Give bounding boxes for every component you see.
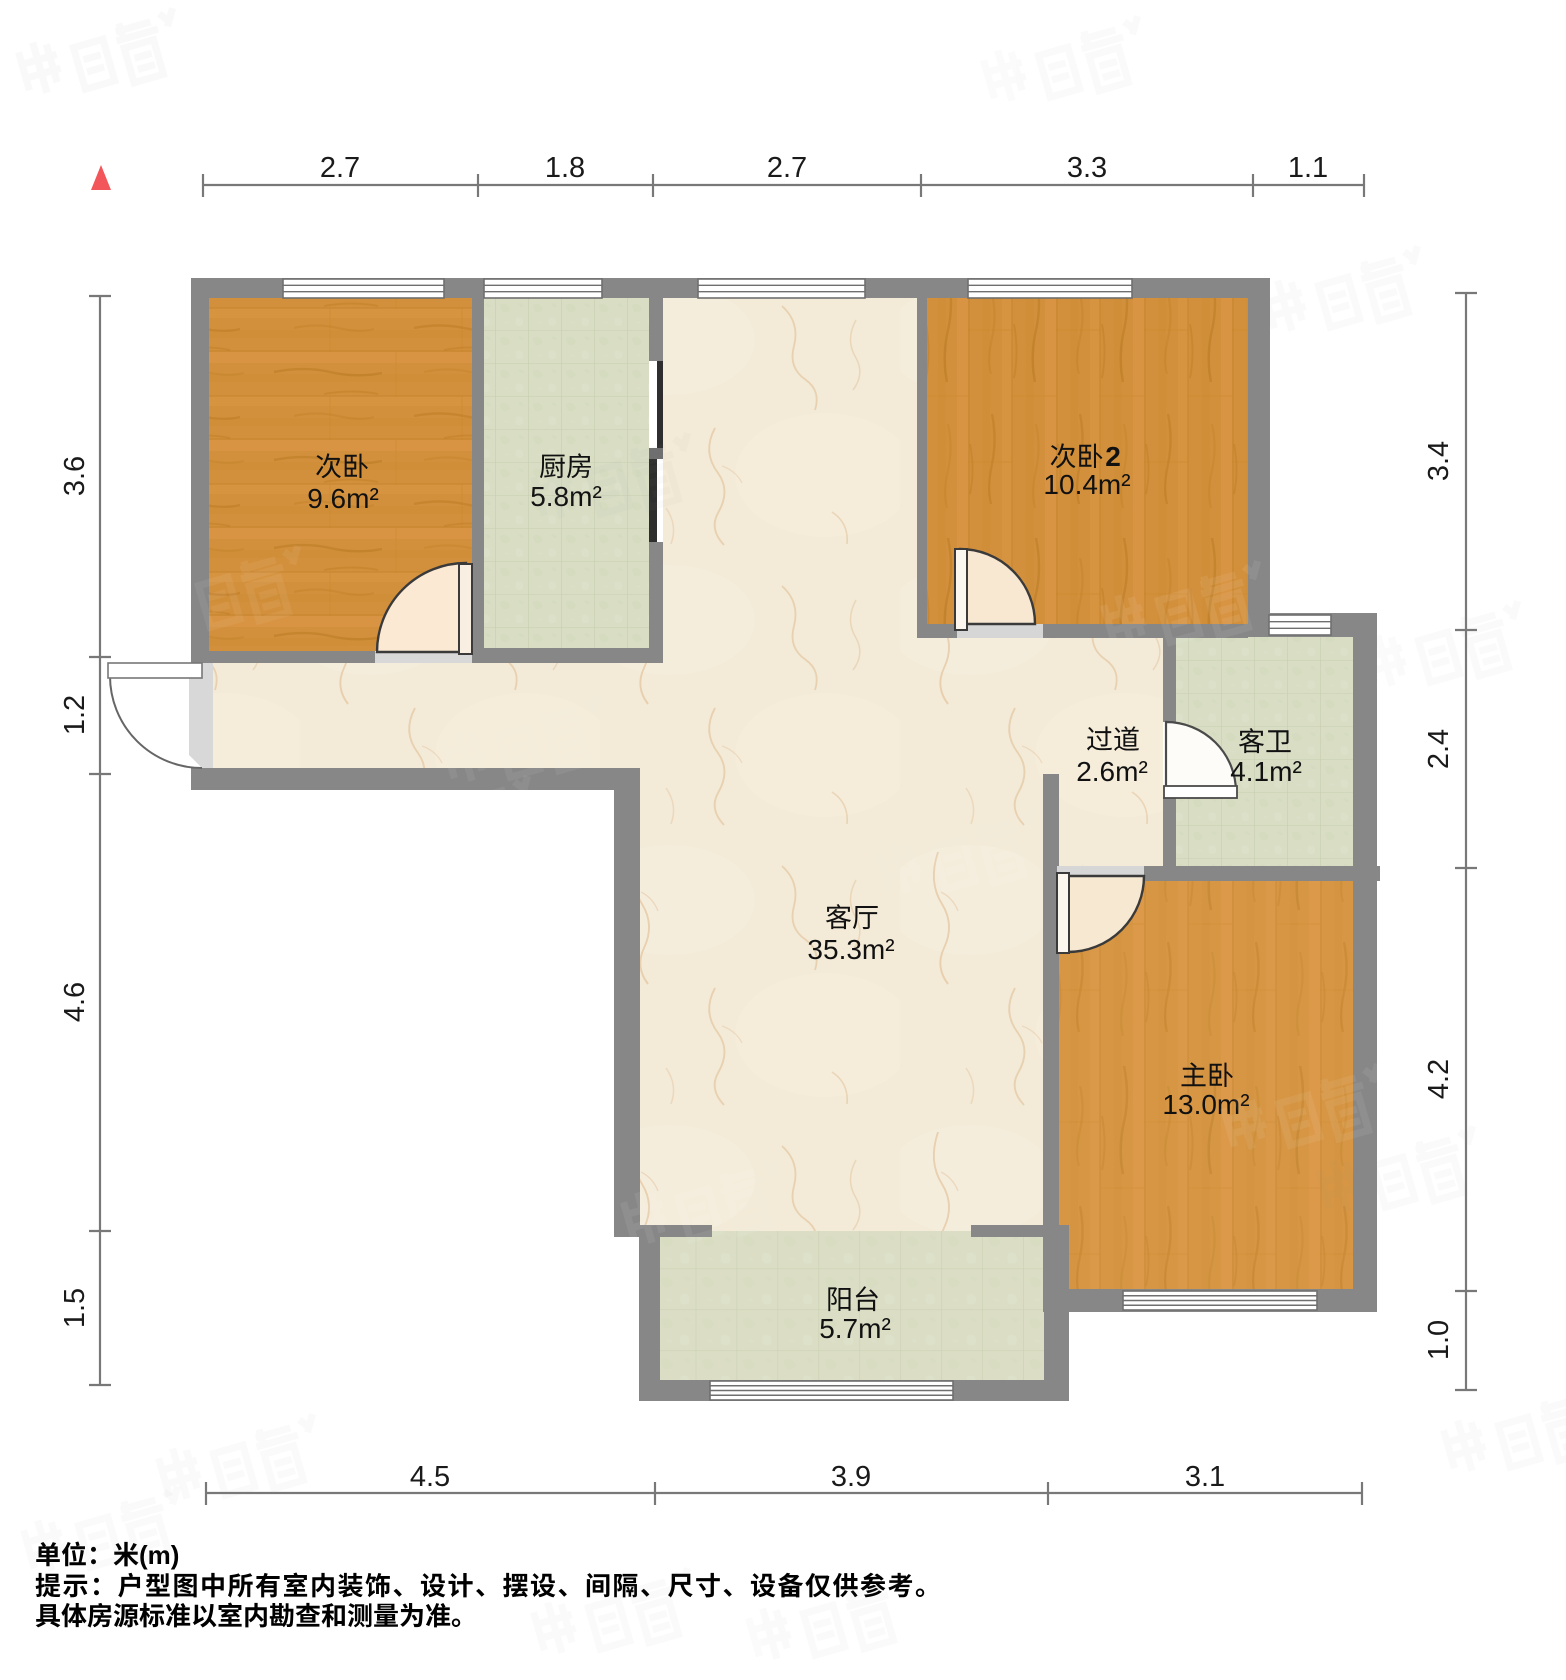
svg-text:4.6: 4.6 bbox=[59, 982, 91, 1022]
svg-text:1.5: 1.5 bbox=[59, 1288, 91, 1328]
svg-text:10.4m²: 10.4m² bbox=[1043, 469, 1130, 500]
svg-text:2.7: 2.7 bbox=[767, 152, 807, 184]
svg-text:5.7m²: 5.7m² bbox=[819, 1313, 891, 1344]
svg-text:3.3: 3.3 bbox=[1067, 152, 1107, 184]
svg-text:4.2: 4.2 bbox=[1423, 1059, 1455, 1099]
svg-text:1.8: 1.8 bbox=[545, 152, 585, 184]
svg-text:2: 2 bbox=[1105, 441, 1121, 472]
svg-text:3.1: 3.1 bbox=[1185, 1461, 1225, 1493]
svg-text:2.4: 2.4 bbox=[1423, 729, 1455, 769]
svg-text:3.6: 3.6 bbox=[59, 456, 91, 496]
svg-text:1.1: 1.1 bbox=[1288, 152, 1328, 184]
svg-text:1.0: 1.0 bbox=[1423, 1320, 1455, 1360]
svg-text:1.2: 1.2 bbox=[59, 695, 91, 735]
svg-text:3.9: 3.9 bbox=[831, 1461, 871, 1493]
svg-text:2.7: 2.7 bbox=[320, 152, 360, 184]
svg-text:4.5: 4.5 bbox=[410, 1461, 450, 1493]
svg-text:4.1m²: 4.1m² bbox=[1230, 756, 1302, 787]
svg-text:2.6m²: 2.6m² bbox=[1076, 756, 1148, 787]
svg-text:9.6m²: 9.6m² bbox=[307, 483, 379, 514]
svg-text:3.4: 3.4 bbox=[1423, 441, 1455, 481]
svg-text:35.3m²: 35.3m² bbox=[807, 934, 894, 965]
